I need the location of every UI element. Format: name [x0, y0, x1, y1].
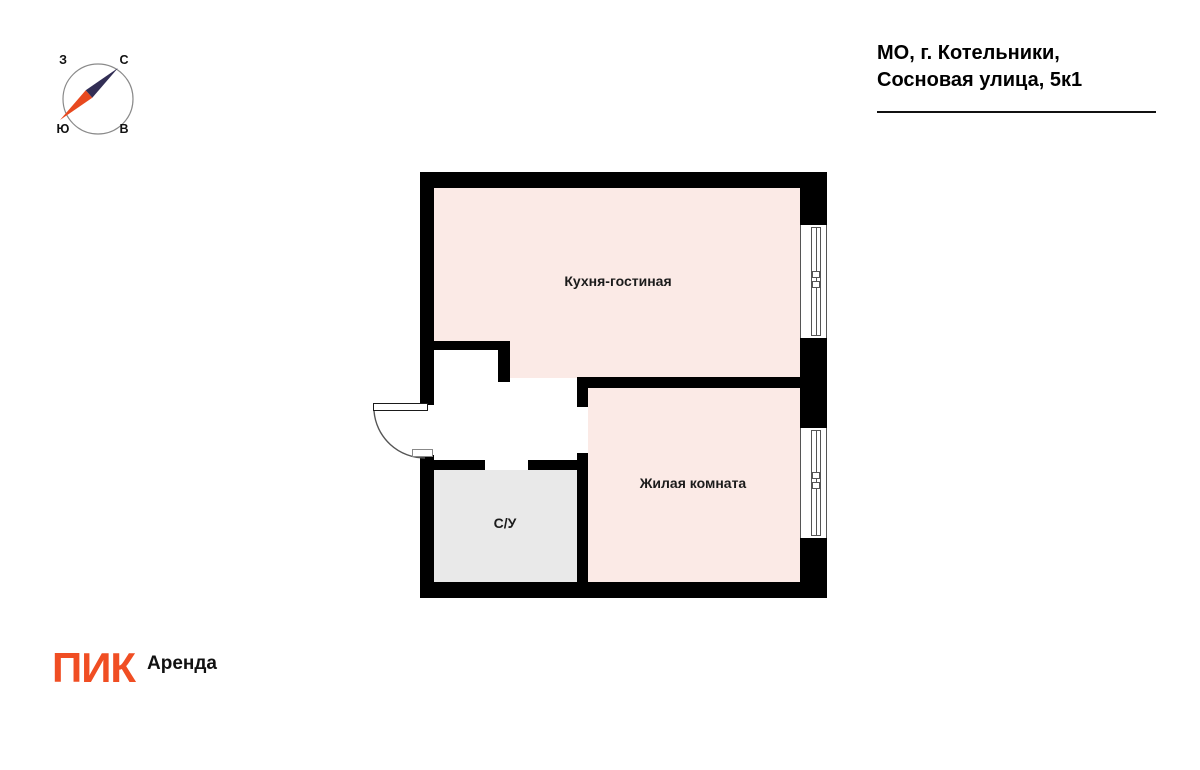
address-line-1: МО, г. Котельники,: [877, 40, 1082, 67]
compass-icon: З С Ю В: [38, 42, 158, 158]
compass-needle-south-icon: [60, 90, 92, 120]
wall: [800, 538, 827, 598]
compass-needle-north-icon: [86, 68, 118, 98]
wall: [577, 377, 800, 388]
wall: [420, 582, 827, 598]
wall: [800, 172, 827, 225]
compass-label-south: Ю: [57, 122, 70, 136]
window-sash: [812, 482, 820, 489]
window-living-icon: [800, 428, 827, 538]
pik-product-label: Аренда: [147, 653, 217, 675]
compass-label-west: З: [59, 53, 67, 67]
compass-label-east: В: [119, 122, 128, 136]
room-label-bathroom: С/У: [494, 515, 517, 531]
floorplan-page: З С Ю В МО, г. Котельники, Сосновая улиц…: [0, 0, 1200, 770]
pik-logo: ПИК: [52, 648, 135, 688]
wall: [420, 172, 434, 405]
hallway-floor: [433, 350, 498, 378]
wall: [800, 338, 827, 428]
wall: [577, 453, 588, 582]
wall: [528, 460, 577, 470]
wall: [433, 460, 485, 470]
room-label-living: Жилая комната: [640, 475, 746, 491]
window-sash: [812, 281, 820, 288]
header-divider: [877, 111, 1156, 113]
window-kitchen-icon: [800, 225, 827, 338]
door-jamb-icon: [412, 449, 433, 457]
door-leaf-icon: [373, 403, 428, 411]
compass-label-north: С: [119, 53, 128, 67]
wall: [420, 172, 827, 188]
address-block: МО, г. Котельники, Сосновая улица, 5к1: [877, 40, 1082, 94]
address-line-2: Сосновая улица, 5к1: [877, 67, 1082, 94]
wall: [577, 377, 588, 407]
window-sash: [812, 472, 820, 479]
wall: [420, 455, 434, 598]
window-sash: [812, 271, 820, 278]
wall: [498, 341, 510, 382]
floorplan: Кухня-гостиная Жилая комната С/У: [420, 172, 827, 598]
room-label-kitchen-living: Кухня-гостиная: [564, 273, 671, 289]
